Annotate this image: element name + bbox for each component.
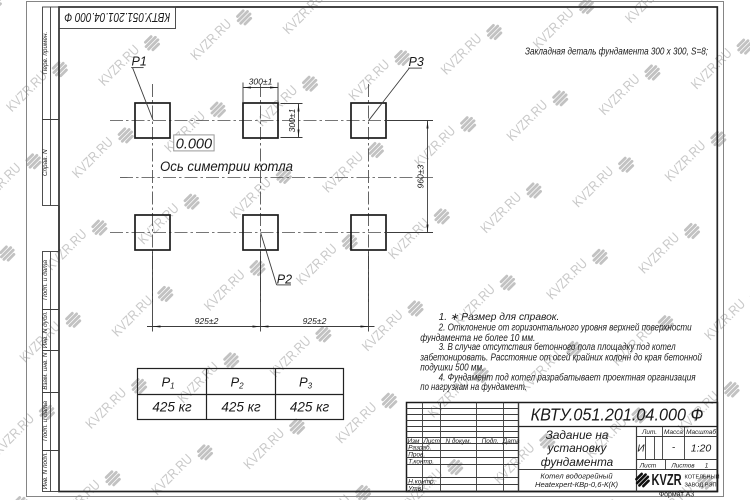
svg-text:КВТУ.051.201.04.000 Ф: КВТУ.051.201.04.000 Ф: [64, 10, 170, 25]
svg-text:KVZR.RU: KVZR.RU: [596, 71, 643, 118]
svg-text:KVZR.RU: KVZR.RU: [543, 256, 590, 303]
svg-text:ЗАВОД РЭП: ЗАВОД РЭП: [685, 483, 717, 489]
svg-text:И: И: [637, 444, 645, 455]
svg-text:KVZR.RU: KVZR.RU: [346, 57, 393, 104]
svg-text:KVZR.RU: KVZR.RU: [83, 385, 130, 432]
svg-text:Взам. инв. N: Взам. инв. N: [42, 352, 49, 390]
svg-text:300±1: 300±1: [249, 77, 273, 87]
svg-text:425 кг: 425 кг: [152, 400, 192, 415]
svg-text:KVZR.RU: KVZR.RU: [293, 241, 340, 288]
svg-text:KVZR.RU: KVZR.RU: [241, 425, 288, 472]
svg-text:Подп. и дата: Подп. и дата: [41, 401, 49, 441]
svg-text:KVZR.RU: KVZR.RU: [201, 267, 248, 314]
svg-text:KVZR.RU: KVZR.RU: [135, 201, 182, 248]
svg-text:KVZR.RU: KVZR.RU: [701, 296, 748, 343]
svg-text:KVZR.RU: KVZR.RU: [570, 164, 617, 211]
svg-text:KVZR.RU: KVZR.RU: [333, 400, 380, 447]
svg-text:KVZR.RU: KVZR.RU: [662, 138, 709, 185]
svg-text:KVZR.RU: KVZR.RU: [319, 149, 366, 196]
svg-text:Р2: Р2: [230, 374, 244, 390]
svg-text:Инв. N подл.: Инв. N подл.: [41, 452, 49, 489]
svg-text:Р1: Р1: [161, 374, 174, 390]
svg-text:KVZR.RU: KVZR.RU: [438, 31, 485, 78]
svg-text:925±2: 925±2: [303, 316, 327, 326]
svg-text:Лист: Лист: [639, 463, 657, 470]
svg-text:Масса: Масса: [664, 429, 683, 436]
svg-text:Разраб.: Разраб.: [408, 444, 431, 452]
svg-text:по нагрузкам на фундамент.: по нагрузкам на фундамент.: [420, 381, 527, 393]
svg-text:Т.контр.: Т.контр.: [408, 459, 434, 466]
svg-text:KVZR.RU: KVZR.RU: [267, 333, 314, 380]
svg-text:Подп. и дата: Подп. и дата: [41, 260, 49, 300]
svg-text:KVZR.RU: KVZR.RU: [307, 492, 354, 500]
svg-text:KVZR.RU: KVZR.RU: [17, 319, 64, 366]
svg-text:Инв. N дубл.: Инв. N дубл.: [41, 311, 49, 348]
svg-text:KVZR: KVZR: [652, 472, 682, 489]
svg-text:Heatexpert-КВр-0,6-К(К): Heatexpert-КВр-0,6-К(К): [535, 480, 619, 489]
svg-text:Р3: Р3: [299, 374, 313, 390]
svg-text:Закладная деталь фундамента 3: Закладная деталь фундамента 300 х 300, S…: [525, 47, 708, 58]
svg-text:KVZR.RU: KVZR.RU: [385, 215, 432, 262]
svg-text:425 кг: 425 кг: [221, 400, 261, 415]
svg-text:P2: P2: [277, 273, 292, 287]
svg-text:забетонировать. Расстояние о: забетонировать. Расстояние от осей крайн…: [420, 351, 703, 363]
svg-text:КВТУ.051.201.04.000 Ф: КВТУ.051.201.04.000 Ф: [531, 405, 704, 425]
svg-text:KVZR.RU: KVZR.RU: [622, 0, 669, 26]
svg-text:Подп.: Подп.: [482, 437, 499, 445]
svg-text:KVZR.RU: KVZR.RU: [359, 307, 406, 354]
svg-text:425 кг: 425 кг: [290, 400, 330, 415]
svg-text:KVZR.RU: KVZR.RU: [412, 123, 459, 170]
svg-text:KVZR.RU: KVZR.RU: [43, 226, 90, 273]
svg-text:KVZR.RU: KVZR.RU: [188, 16, 235, 63]
svg-text:1:20: 1:20: [691, 443, 712, 455]
svg-text:KVZR.RU: KVZR.RU: [478, 189, 525, 236]
svg-text:Формат А3: Формат А3: [659, 491, 694, 498]
svg-text:KVZR.RU: KVZR.RU: [636, 230, 683, 277]
svg-text:KVZR.RU: KVZR.RU: [280, 0, 327, 37]
svg-text:Задание на: Задание на: [546, 428, 609, 442]
svg-text:Н.контр.: Н.контр.: [408, 478, 435, 485]
svg-text:KVZR.RU: KVZR.RU: [0, 411, 37, 458]
svg-text:KVZR.RU: KVZR.RU: [69, 134, 116, 181]
svg-text:Лит.: Лит.: [641, 429, 657, 436]
svg-text:Листов: Листов: [670, 463, 695, 470]
svg-text:1: 1: [705, 463, 709, 470]
svg-text:KVZR.RU: KVZR.RU: [504, 97, 551, 144]
svg-text:фундамента: фундамента: [541, 455, 614, 469]
svg-text:Масштаб: Масштаб: [686, 428, 716, 436]
svg-text:N докум.: N докум.: [445, 437, 471, 445]
svg-text:-: -: [672, 443, 676, 454]
svg-text:925±2: 925±2: [195, 316, 219, 326]
svg-text:Перв. примен.: Перв. примен.: [42, 32, 49, 74]
svg-text:KVZR.RU: KVZR.RU: [0, 160, 24, 207]
svg-text:Пров.: Пров.: [408, 452, 425, 459]
svg-text:0.000: 0.000: [176, 136, 212, 152]
svg-text:Справ. N: Справ. N: [42, 149, 49, 176]
svg-text:300±1: 300±1: [287, 108, 297, 132]
svg-text:Дата: Дата: [502, 438, 520, 445]
svg-text:KVZR.RU: KVZR.RU: [530, 5, 577, 52]
svg-text:960±3: 960±3: [416, 164, 426, 188]
svg-text:установку: установку: [547, 441, 608, 455]
svg-text:KVZR.RU: KVZR.RU: [491, 440, 538, 487]
svg-text:Утв.: Утв.: [407, 485, 423, 492]
svg-text:КОТЕЛЬНЫЙ: КОТЕЛЬНЫЙ: [685, 473, 720, 481]
svg-text:P3: P3: [409, 55, 424, 69]
svg-text:KVZR.RU: KVZR.RU: [109, 293, 156, 340]
svg-text:P1: P1: [132, 55, 147, 69]
svg-text:Ось симетрии котла: Ось симетрии котла: [160, 159, 293, 174]
svg-text:1. ∗ Размер для справок.: 1. ∗ Размер для справок.: [439, 312, 560, 323]
